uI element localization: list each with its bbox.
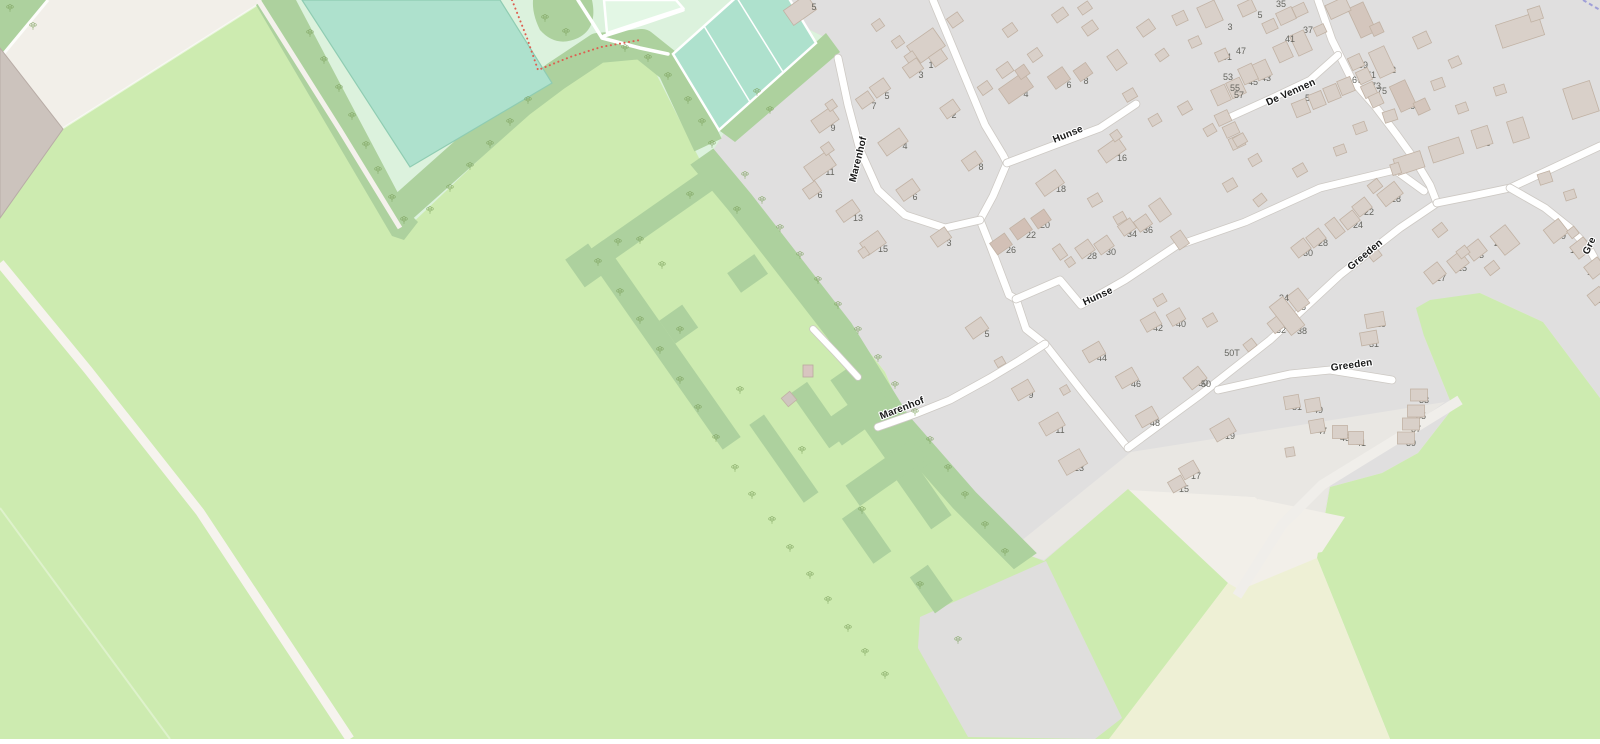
svg-text:5: 5 (811, 2, 816, 12)
svg-text:53: 53 (1223, 72, 1233, 82)
svg-text:50T: 50T (1224, 348, 1240, 358)
svg-text:57: 57 (1234, 90, 1244, 100)
svg-text:50: 50 (1201, 379, 1211, 389)
svg-text:3: 3 (1227, 22, 1232, 32)
svg-text:47: 47 (1236, 46, 1246, 56)
svg-text:35: 35 (1276, 0, 1286, 9)
svg-text:5: 5 (1257, 10, 1262, 20)
